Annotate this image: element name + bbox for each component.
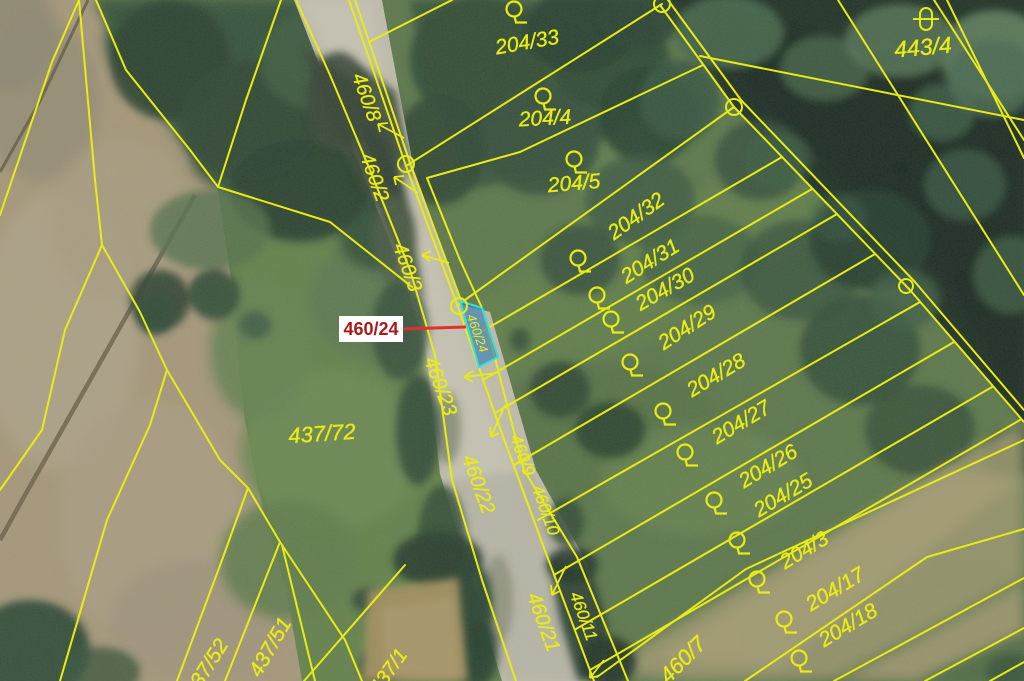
svg-text:460/24: 460/24 [343,319,398,339]
svg-text:437/72: 437/72 [288,419,357,449]
svg-text:204/5: 204/5 [546,170,602,198]
svg-text:204/4: 204/4 [517,106,572,132]
svg-text:443/4: 443/4 [893,32,953,63]
